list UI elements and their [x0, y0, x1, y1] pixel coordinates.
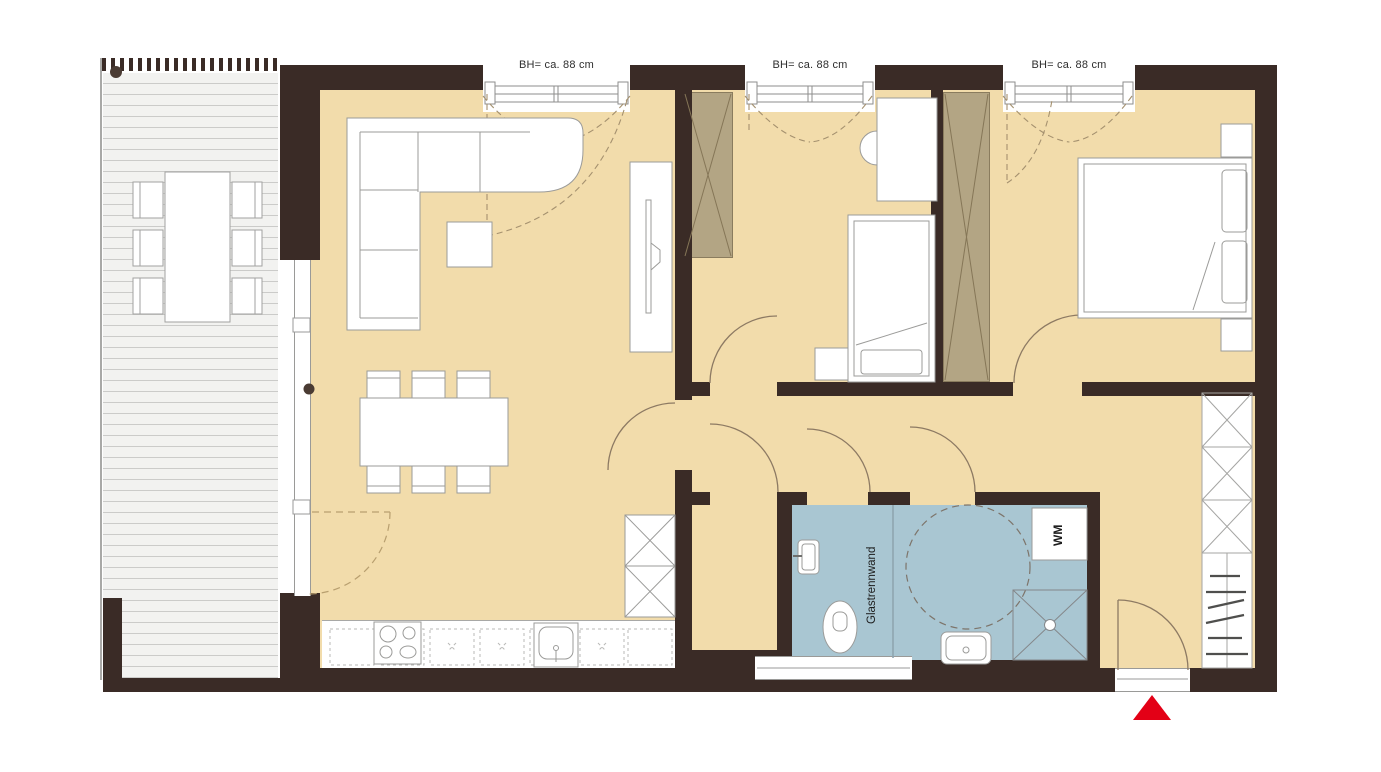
bathroom-window — [755, 656, 912, 680]
wall-bedband-2 — [777, 382, 1013, 396]
bathroom-floor — [792, 505, 1087, 660]
wall-bath-entry — [1087, 492, 1100, 692]
terrace-railing — [102, 58, 280, 71]
wall-hallband-1 — [675, 492, 710, 505]
kitchen-tall-cabinets — [625, 515, 675, 617]
hall-closet — [1202, 393, 1252, 668]
wall-left-upper — [280, 65, 320, 260]
wall-hallband-3 — [868, 492, 910, 505]
washing-machine-label: WM — [1051, 516, 1067, 554]
window-1-label: BH= ca. 88 cm — [483, 59, 630, 71]
wall-hallband-2 — [790, 492, 807, 505]
wall-right — [1255, 65, 1277, 692]
wall-storage-wc — [777, 492, 792, 658]
wall-hallband-4 — [975, 492, 1100, 505]
window-2-label: BH= ca. 88 cm — [745, 59, 875, 71]
terrace-edge-line — [100, 58, 102, 680]
entrance-door-threshold — [1115, 668, 1190, 692]
terrace-wall-bottom — [103, 678, 290, 692]
kitchen-counter — [322, 620, 677, 668]
wall-top-3 — [875, 65, 1003, 90]
wall-living-bedroom2 — [675, 90, 692, 400]
wall-bedroom-divider — [931, 90, 943, 396]
terrace-glass-front — [294, 260, 311, 596]
floor-plan: BH= ca. 88 cm BH= ca. 88 cm BH= ca. 88 c… — [0, 0, 1381, 772]
wall-bedband-3 — [1082, 382, 1255, 396]
entrance-marker-icon — [1133, 695, 1171, 720]
glass-partition-label: Glastrennwand — [866, 522, 882, 648]
window-3-label: BH= ca. 88 cm — [1003, 59, 1135, 71]
terrace-deck — [103, 73, 278, 680]
wall-top-2 — [630, 65, 745, 90]
wall-bedband-1 — [675, 382, 710, 396]
wardrobe-bedroom1 — [943, 92, 990, 382]
